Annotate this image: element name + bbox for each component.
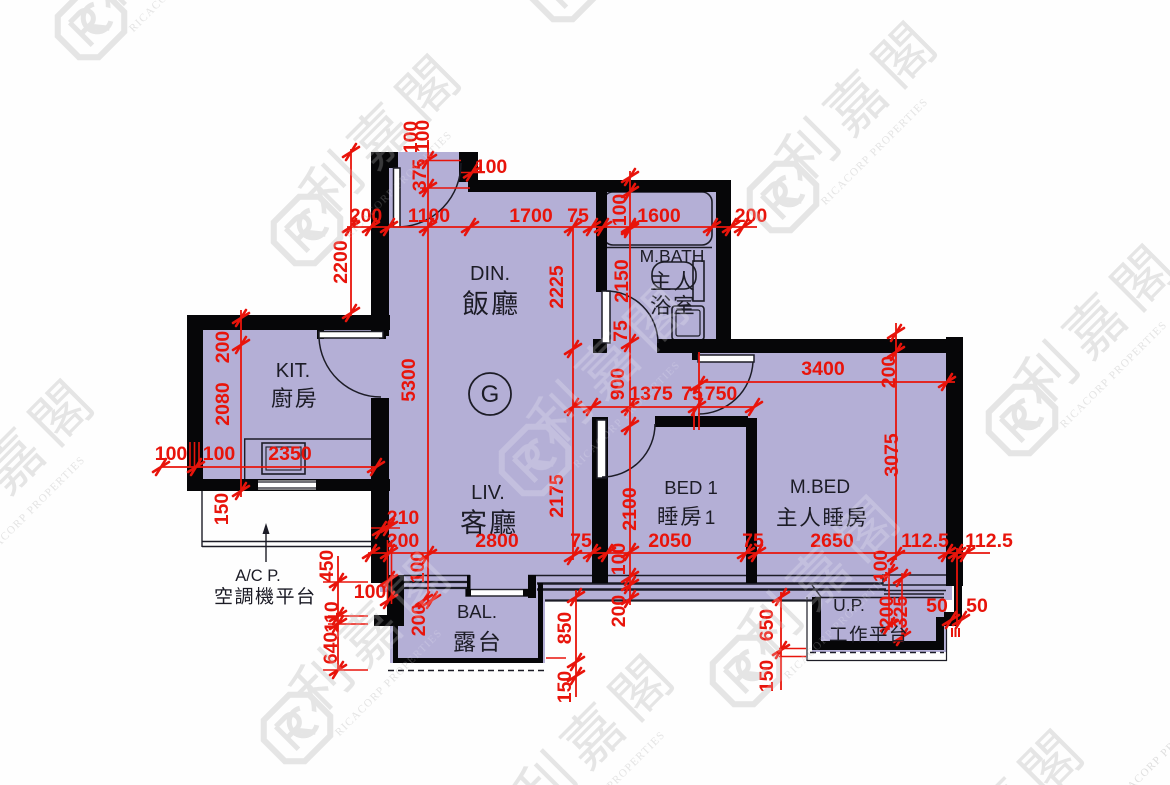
svg-text:M.BED: M.BED xyxy=(790,477,850,498)
svg-text:2225: 2225 xyxy=(546,265,568,309)
svg-text:325: 325 xyxy=(890,596,912,629)
svg-text:3075: 3075 xyxy=(881,433,903,477)
svg-text:A/C P.: A/C P. xyxy=(235,567,281,585)
svg-text:450: 450 xyxy=(316,550,338,583)
svg-text:150: 150 xyxy=(211,493,233,526)
svg-text:850: 850 xyxy=(554,612,576,645)
svg-text:2150: 2150 xyxy=(611,259,633,303)
svg-text:100: 100 xyxy=(354,581,387,603)
svg-text:1: 1 xyxy=(705,508,716,529)
svg-text:100: 100 xyxy=(155,443,188,465)
svg-text:75: 75 xyxy=(570,530,592,552)
svg-text:BAL.: BAL. xyxy=(457,601,497,622)
svg-text:G: G xyxy=(481,381,500,408)
svg-text:100: 100 xyxy=(203,443,236,465)
svg-text:50: 50 xyxy=(926,595,948,617)
svg-text:200: 200 xyxy=(608,595,630,628)
svg-text:2350: 2350 xyxy=(268,443,312,465)
svg-text:BED 1: BED 1 xyxy=(664,477,717,498)
svg-text:150: 150 xyxy=(554,671,576,704)
svg-text:200: 200 xyxy=(212,331,234,364)
svg-text:3400: 3400 xyxy=(801,358,845,380)
svg-text:750: 750 xyxy=(705,383,738,405)
svg-text:5300: 5300 xyxy=(398,358,420,402)
svg-text:M.BATH: M.BATH xyxy=(640,246,705,266)
svg-text:2050: 2050 xyxy=(648,530,692,552)
svg-text:2800: 2800 xyxy=(475,530,519,552)
svg-text:112.5: 112.5 xyxy=(965,530,1013,552)
svg-text:100: 100 xyxy=(609,194,631,227)
svg-text:KIT.: KIT. xyxy=(276,360,310,382)
svg-text:2100: 2100 xyxy=(619,487,641,531)
svg-text:1600: 1600 xyxy=(637,205,681,227)
svg-text:1700: 1700 xyxy=(509,205,553,227)
svg-text:100: 100 xyxy=(475,156,508,178)
svg-text:110: 110 xyxy=(321,601,343,633)
svg-text:112.5: 112.5 xyxy=(901,530,949,552)
svg-text:DIN.: DIN. xyxy=(470,263,510,285)
svg-text:210: 210 xyxy=(387,507,420,529)
svg-text:50: 50 xyxy=(966,595,988,617)
svg-text:2080: 2080 xyxy=(212,382,234,426)
svg-text:LIV.: LIV. xyxy=(471,482,505,504)
svg-text:75: 75 xyxy=(742,530,764,552)
